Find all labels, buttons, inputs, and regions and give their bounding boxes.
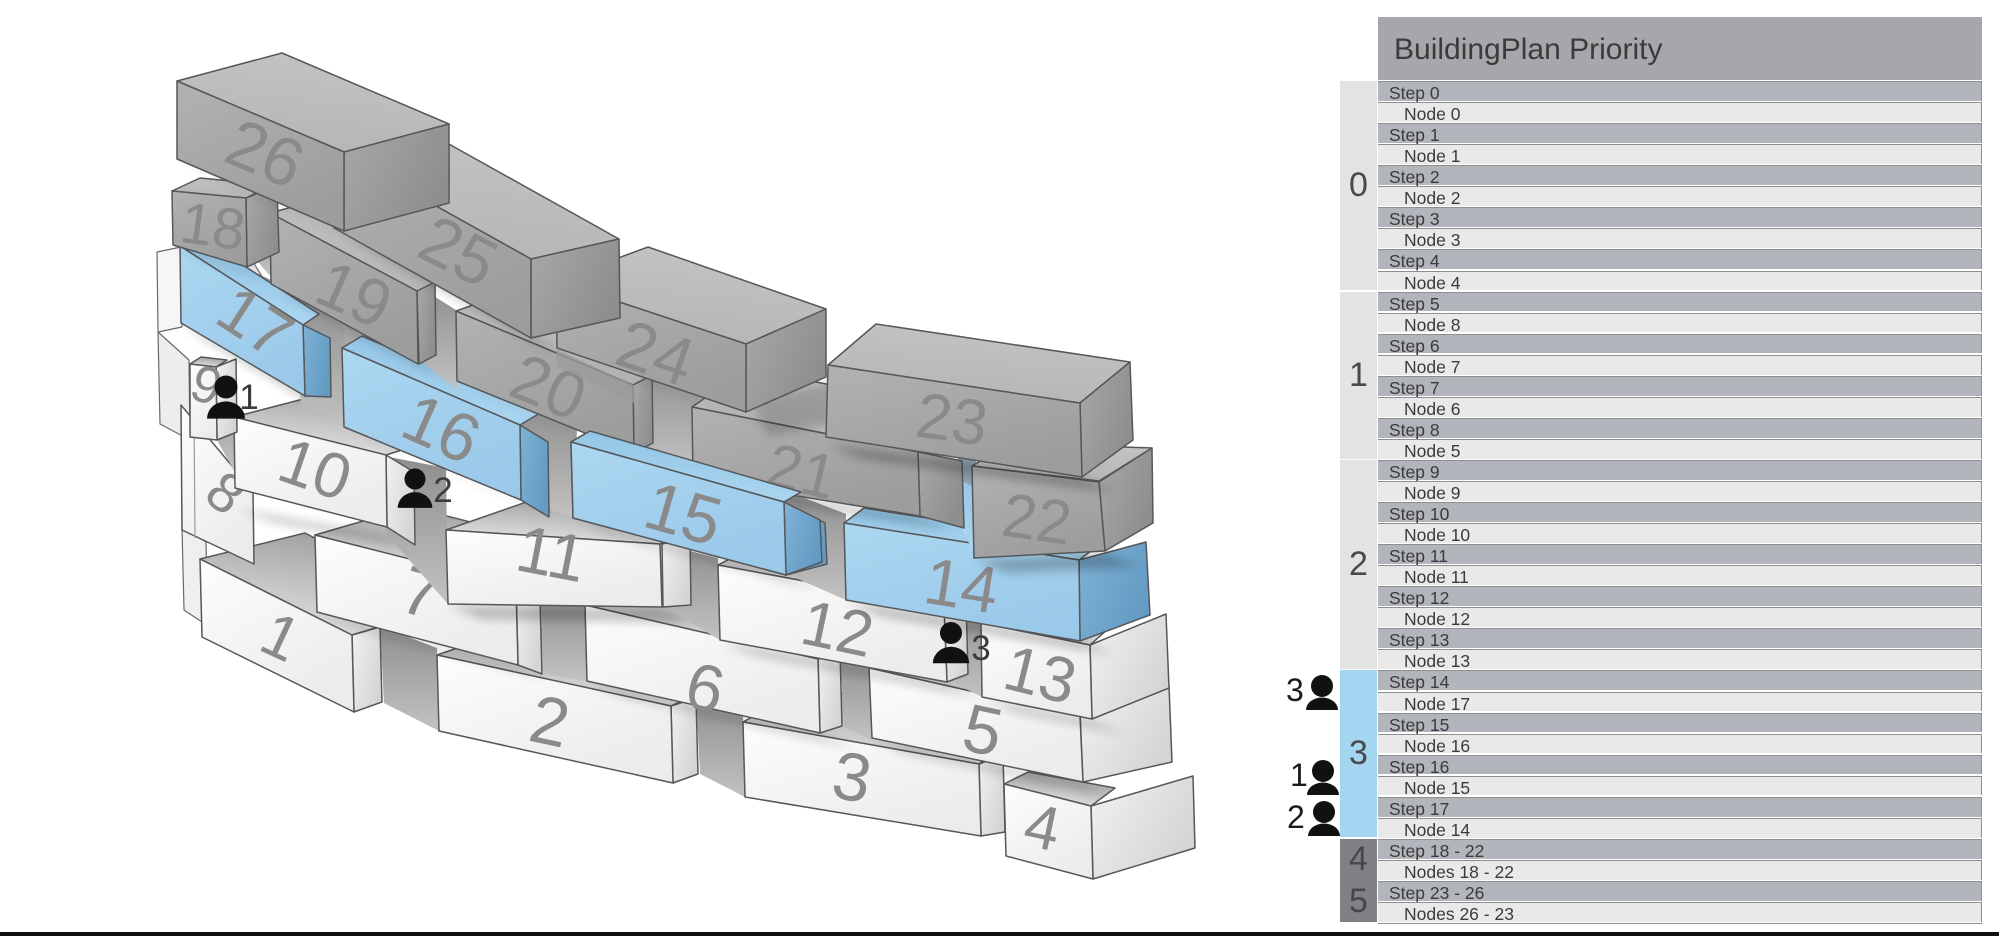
svg-text:3: 3 bbox=[971, 629, 990, 668]
svg-text:22: 22 bbox=[998, 481, 1076, 559]
svg-text:2: 2 bbox=[433, 471, 452, 510]
svg-text:1: 1 bbox=[239, 378, 258, 417]
svg-text:11: 11 bbox=[511, 511, 592, 597]
svg-text:18: 18 bbox=[176, 190, 249, 263]
svg-text:23: 23 bbox=[912, 379, 993, 460]
